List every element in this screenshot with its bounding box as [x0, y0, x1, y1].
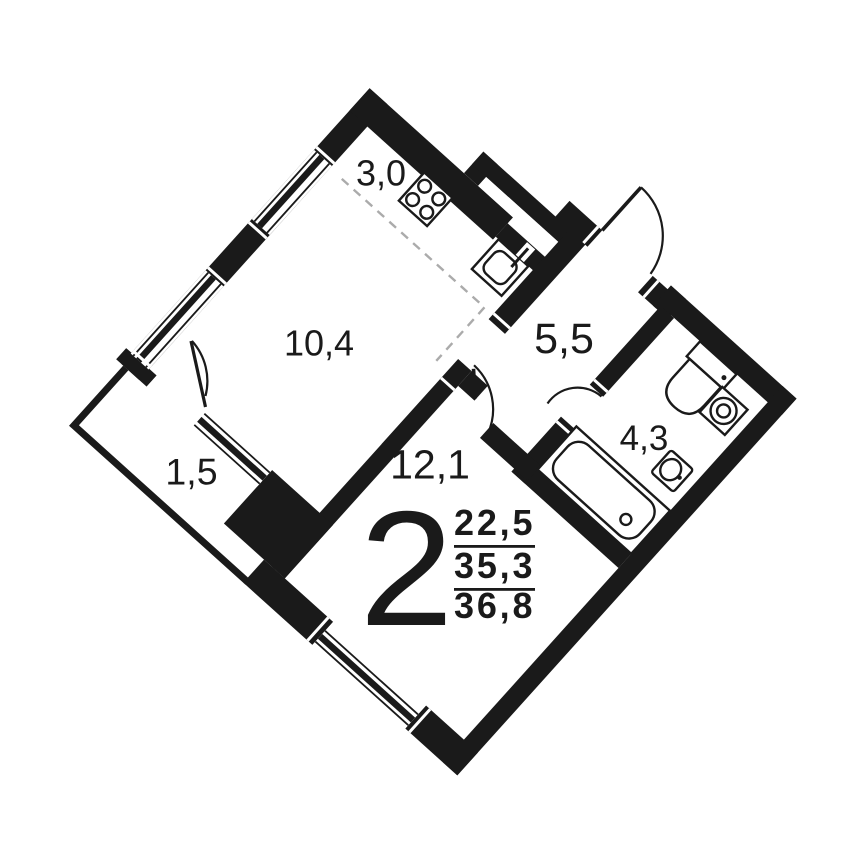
svg-text:22,5: 22,5 [454, 502, 535, 543]
svg-text:35,3: 35,3 [454, 545, 535, 586]
svg-text:2: 2 [359, 478, 453, 661]
svg-text:36,8: 36,8 [454, 585, 535, 626]
svg-text:1,5: 1,5 [165, 451, 217, 493]
svg-text:10,4: 10,4 [284, 323, 354, 364]
svg-text:3,0: 3,0 [356, 153, 406, 194]
svg-text:4,3: 4,3 [620, 419, 669, 458]
svg-text:5,5: 5,5 [534, 315, 594, 363]
